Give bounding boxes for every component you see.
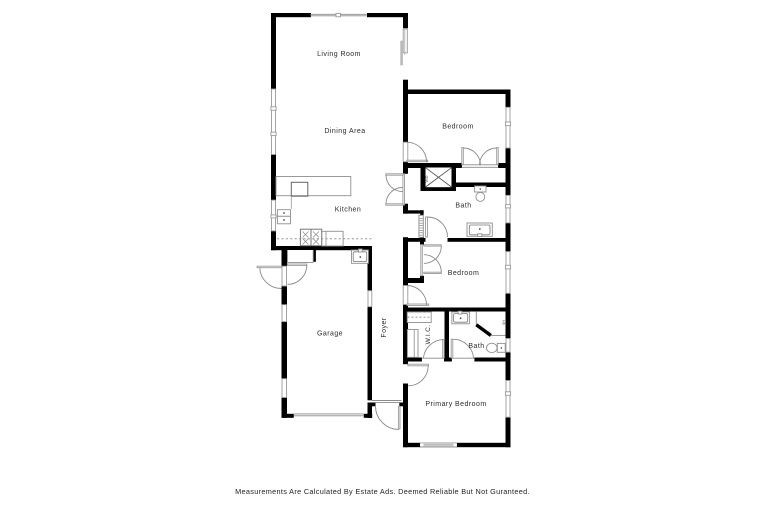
svg-text:Measurements Are Calculated By: Measurements Are Calculated By Estate Ad… [235,487,530,496]
svg-text:Garage: Garage [317,331,343,338]
svg-text:Primary Bedroom: Primary Bedroom [425,401,486,408]
svg-text:Living Room: Living Room [317,51,361,58]
svg-text:Foyer: Foyer [381,317,388,337]
svg-text:Dining Area: Dining Area [324,128,365,135]
svg-text:Kitchen: Kitchen [335,207,362,214]
svg-text:Bath: Bath [468,343,484,350]
svg-text:W/D: W/D [425,175,429,182]
svg-text:Bath: Bath [455,203,471,210]
svg-text:Bedroom: Bedroom [442,124,474,131]
svg-text:Bedroom: Bedroom [448,270,480,277]
svg-text:SH: SH [502,320,506,325]
svg-text:W.I.C.: W.I.C. [425,325,432,345]
